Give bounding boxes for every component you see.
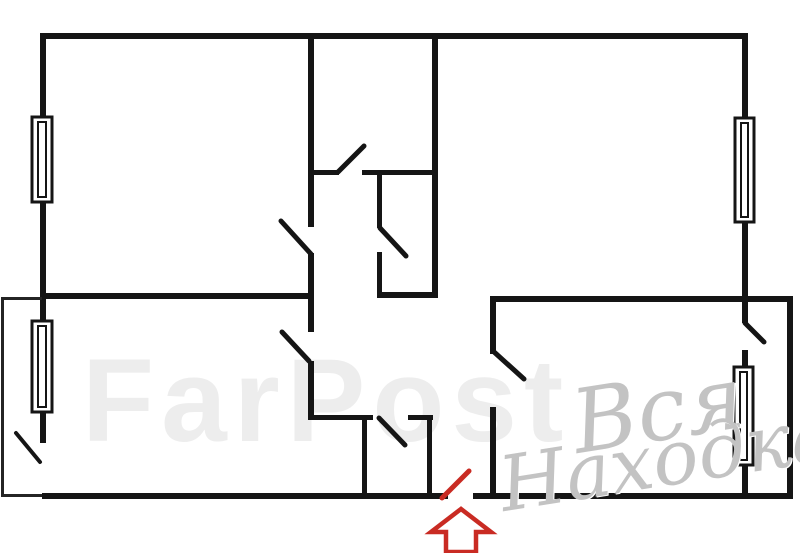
balcony-line: [1, 494, 42, 497]
door-leaf: [16, 433, 40, 462]
wall-segment: [308, 170, 339, 175]
entrance-arrow-icon: [431, 509, 491, 552]
door-leaf: [745, 323, 764, 342]
wall-segment: [377, 172, 382, 228]
door-leaf: [282, 332, 309, 361]
entrance-door-leaf: [442, 471, 469, 498]
door-leaf: [380, 228, 406, 256]
wall-segment: [308, 33, 314, 227]
wall-segment: [490, 296, 793, 302]
wall-segment: [308, 361, 314, 420]
wall-segment: [362, 418, 367, 495]
wall-segment: [42, 293, 313, 299]
balcony-line: [1, 297, 42, 300]
door-leaf: [281, 221, 311, 254]
window-glyph-inner: [38, 122, 46, 197]
door-leaf: [379, 418, 405, 445]
wall-segment: [377, 252, 382, 298]
wall-segment: [42, 493, 448, 499]
wall-segment: [490, 296, 496, 354]
wall-segment: [427, 415, 432, 499]
wall-segment: [432, 33, 438, 298]
floorplan-page: FarPost Вся Находка: [0, 0, 800, 553]
wall-segment: [42, 33, 748, 39]
wall-segment: [377, 292, 437, 298]
balcony-line: [1, 297, 4, 497]
wall-segment: [308, 253, 314, 332]
door-leaf: [493, 351, 524, 379]
window-glyph-inner: [38, 326, 46, 407]
door-leaf: [338, 146, 364, 172]
window-glyph-inner: [741, 123, 748, 217]
wall-segment: [362, 170, 437, 175]
